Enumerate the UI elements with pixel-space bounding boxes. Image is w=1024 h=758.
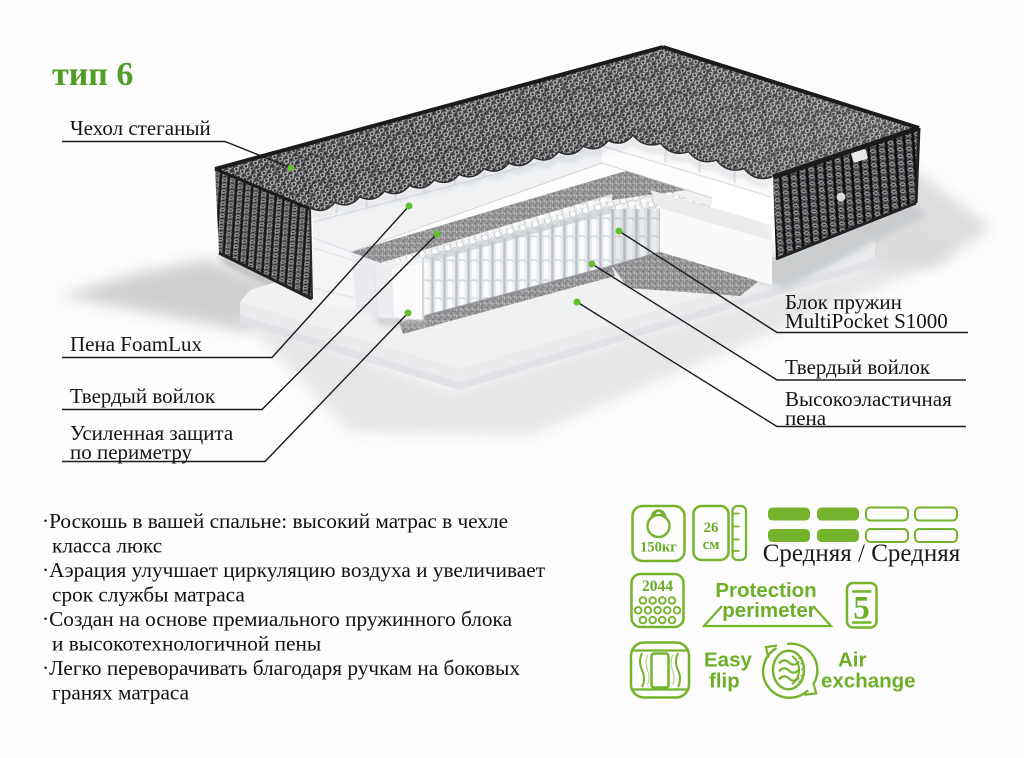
svg-text:по периметру: по периметру <box>70 440 193 464</box>
svg-text:Чехол стеганый: Чехол стеганый <box>70 116 211 140</box>
svg-text:срок службы матраса: срок службы матраса <box>52 583 245 607</box>
svg-text:пена: пена <box>785 406 827 430</box>
svg-text:5: 5 <box>853 591 870 627</box>
svg-text:2044: 2044 <box>642 578 673 595</box>
svg-text:perimeter: perimeter <box>722 599 815 622</box>
svg-text:тип 6: тип 6 <box>52 56 133 93</box>
svg-text:Пена FoamLux: Пена FoamLux <box>70 332 202 356</box>
svg-text:150кг: 150кг <box>640 540 677 556</box>
svg-text:·Создан на основе премиального: ·Создан на основе премиального пружинног… <box>42 607 513 631</box>
svg-text:см: см <box>703 537 720 553</box>
svg-text:·Роскошь в вашей спальне: высо: ·Роскошь в вашей спальне: высокий матрас… <box>42 509 508 533</box>
svg-text:и высокотехнологичной пены: и высокотехнологичной пены <box>52 632 321 656</box>
svg-text:Твердый войлок: Твердый войлок <box>70 384 216 408</box>
svg-text:·Легко переворачивать благодар: ·Легко переворачивать благодаря ручкам н… <box>42 656 520 680</box>
svg-text:гранях матраса: гранях матраса <box>52 681 190 705</box>
svg-text:Твердый войлок: Твердый войлок <box>785 355 931 379</box>
svg-text:класса люкс: класса люкс <box>52 534 162 558</box>
svg-text:Easy: Easy <box>704 649 752 672</box>
svg-text:26: 26 <box>704 520 720 536</box>
svg-text:exchange: exchange <box>821 670 916 693</box>
svg-text:flip: flip <box>709 670 740 693</box>
svg-text:·Аэрация улучшает циркуляцию в: ·Аэрация улучшает циркуляцию воздуха и у… <box>42 558 545 582</box>
svg-text:Средняя / Средняя: Средняя / Средняя <box>763 540 961 567</box>
svg-text:Air: Air <box>838 649 867 672</box>
svg-text:MultiPocket S1000: MultiPocket S1000 <box>785 309 948 333</box>
